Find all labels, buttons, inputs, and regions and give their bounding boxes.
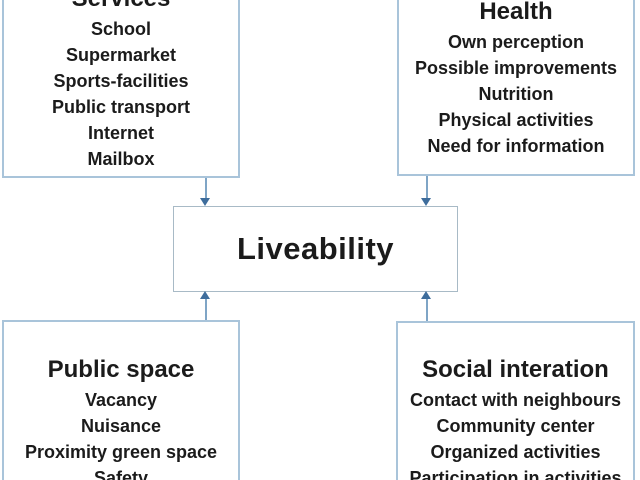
- connector-line-public-space-to-liveability: [205, 299, 207, 320]
- social-interaction-title: Social interation: [398, 353, 633, 387]
- health-item: Need for information: [399, 133, 633, 159]
- health-item: Nutrition: [399, 81, 633, 107]
- services-box: Services School Supermarket Sports-facil…: [2, 0, 240, 178]
- arrow-down-icon: [200, 198, 210, 206]
- public-space-item: Proximity green space: [4, 439, 238, 465]
- liveability-box: Liveability: [173, 206, 458, 292]
- health-title: Health: [399, 0, 633, 29]
- services-item: School: [4, 16, 238, 42]
- liveability-diagram: Services School Supermarket Sports-facil…: [0, 0, 640, 480]
- health-item: Own perception: [399, 29, 633, 55]
- arrow-up-icon: [200, 291, 210, 299]
- health-item: Physical activities: [399, 107, 633, 133]
- social-interaction-item: Community center: [398, 413, 633, 439]
- services-item: Internet: [4, 120, 238, 146]
- social-interaction-item: Contact with neighbours: [398, 387, 633, 413]
- services-title: Services: [4, 0, 238, 16]
- services-item: Mailbox: [4, 146, 238, 172]
- public-space-title: Public space: [4, 353, 238, 387]
- public-space-item: Nuisance: [4, 413, 238, 439]
- public-space-box: Public space Vacancy Nuisance Proximity …: [2, 320, 240, 480]
- arrow-down-icon: [421, 198, 431, 206]
- social-interaction-box: Social interation Contact with neighbour…: [396, 321, 635, 480]
- health-item: Possible improvements: [399, 55, 633, 81]
- public-space-item: Safety: [4, 465, 238, 480]
- connector-line-services-to-liveability: [205, 178, 207, 199]
- services-item: Public transport: [4, 94, 238, 120]
- connector-line-health-to-liveability: [426, 176, 428, 199]
- services-item: Supermarket: [4, 42, 238, 68]
- public-space-item: Vacancy: [4, 387, 238, 413]
- services-item: Sports-facilities: [4, 68, 238, 94]
- liveability-label: Liveability: [237, 231, 394, 267]
- social-interaction-item: Organized activities: [398, 439, 633, 465]
- social-interaction-item: Participation in activities: [398, 465, 633, 480]
- arrow-up-icon: [421, 291, 431, 299]
- health-box: Health Own perception Possible improveme…: [397, 0, 635, 176]
- connector-line-social-interaction-to-liveability: [426, 299, 428, 321]
